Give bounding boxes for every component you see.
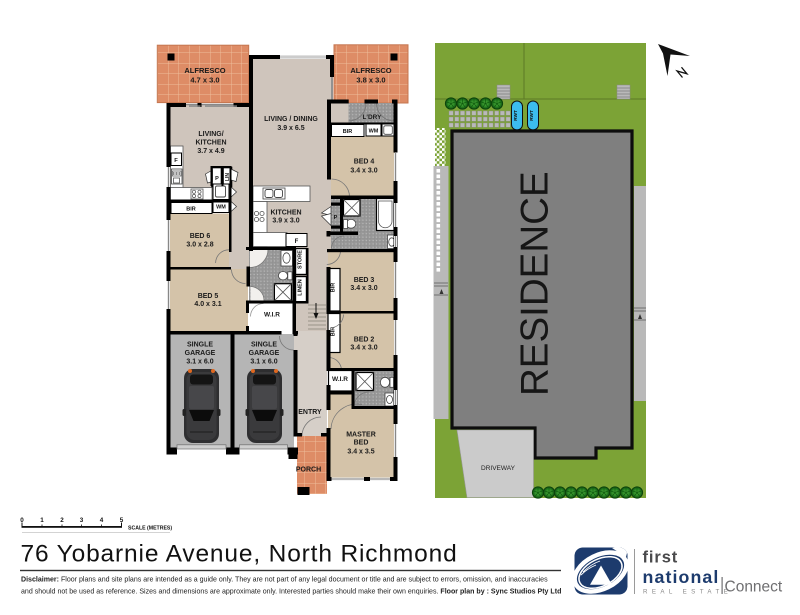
svg-text:MASTER: MASTER xyxy=(346,432,376,439)
svg-text:Disclaimer: Floor plans and si: Disclaimer: Floor plans and site plans a… xyxy=(21,577,548,584)
svg-text:2: 2 xyxy=(60,517,64,524)
svg-text:KITCHEN: KITCHEN xyxy=(195,140,226,147)
svg-text:SCALE (METRES): SCALE (METRES) xyxy=(128,526,172,532)
svg-text:3.1 x 6.0: 3.1 x 6.0 xyxy=(186,359,213,366)
svg-text:BED 2: BED 2 xyxy=(354,337,375,344)
svg-text:ALFRESCO: ALFRESCO xyxy=(350,66,391,75)
svg-text:P: P xyxy=(215,176,219,182)
svg-text:3.4 x 3.0: 3.4 x 3.0 xyxy=(350,345,377,352)
svg-text:3.9 x 6.5: 3.9 x 6.5 xyxy=(277,125,304,132)
svg-text:SINGLE: SINGLE xyxy=(251,342,277,349)
svg-text:WM: WM xyxy=(216,205,226,211)
svg-text:4.0 x 3.1: 4.0 x 3.1 xyxy=(194,301,221,308)
svg-text:WM: WM xyxy=(369,129,379,135)
svg-text:BIR: BIR xyxy=(331,283,337,293)
svg-text:3.4 x 3.5: 3.4 x 3.5 xyxy=(347,449,374,456)
svg-text:LIVING/: LIVING/ xyxy=(198,131,223,138)
svg-text:3.0 x 2.8: 3.0 x 2.8 xyxy=(186,242,213,249)
svg-text:BIR: BIR xyxy=(331,327,337,337)
svg-text:RWT: RWT xyxy=(513,110,519,121)
svg-text:F: F xyxy=(174,158,178,164)
svg-text:BIR: BIR xyxy=(186,207,196,213)
svg-text:first: first xyxy=(643,549,679,567)
svg-text:L’DRY: L’DRY xyxy=(363,114,383,121)
svg-text:4.7 x 3.0: 4.7 x 3.0 xyxy=(190,76,219,85)
svg-text:BED 3: BED 3 xyxy=(354,277,375,284)
svg-text:3.1 x 6.0: 3.1 x 6.0 xyxy=(250,359,277,366)
svg-text:REAL ESTATE: REAL ESTATE xyxy=(643,589,732,596)
svg-text:LIVING / DINING: LIVING / DINING xyxy=(264,116,318,123)
svg-text:BED 4: BED 4 xyxy=(354,159,375,166)
svg-text:GARAGE: GARAGE xyxy=(249,350,280,357)
svg-text:3.8 x 3.0: 3.8 x 3.0 xyxy=(356,76,385,85)
svg-text:4: 4 xyxy=(100,517,104,524)
svg-text:P: P xyxy=(334,215,338,221)
svg-text:W.I.R: W.I.R xyxy=(332,376,348,383)
svg-text:BIR: BIR xyxy=(343,129,353,135)
svg-text:1: 1 xyxy=(40,517,44,524)
svg-text:Connect: Connect xyxy=(725,579,783,596)
svg-text:BED 6: BED 6 xyxy=(190,233,211,240)
svg-text:F: F xyxy=(295,239,299,245)
svg-text:ENTRY: ENTRY xyxy=(298,409,322,416)
svg-text:PORCH: PORCH xyxy=(296,467,321,474)
svg-text:ALFRESCO: ALFRESCO xyxy=(184,66,225,75)
svg-text:DRIVEWAY: DRIVEWAY xyxy=(481,465,516,472)
svg-text:SINGLE: SINGLE xyxy=(187,342,213,349)
svg-text:RESIDENCE: RESIDENCE xyxy=(514,171,557,396)
svg-text:and should not be used as refe: and should not be used as reference. Siz… xyxy=(21,589,561,596)
svg-text:GARAGE: GARAGE xyxy=(185,350,216,357)
svg-text:3.9 x 3.0: 3.9 x 3.0 xyxy=(272,218,299,225)
svg-text:RWT: RWT xyxy=(529,110,535,121)
svg-text:BED 5: BED 5 xyxy=(198,293,219,300)
svg-text:BED: BED xyxy=(354,440,369,447)
svg-text:KITCHEN: KITCHEN xyxy=(270,210,301,217)
svg-text:3.7 x 4.9: 3.7 x 4.9 xyxy=(197,148,224,155)
svg-text:3: 3 xyxy=(80,517,84,524)
svg-text:STORE: STORE xyxy=(298,250,304,269)
svg-text:3.4 x 3.0: 3.4 x 3.0 xyxy=(350,168,377,175)
svg-text:W.I.R: W.I.R xyxy=(264,312,280,319)
svg-text:76 Yobarnie Avenue, North Rich: 76 Yobarnie Avenue, North Richmond xyxy=(21,541,458,568)
svg-text:3.4 x 3.0: 3.4 x 3.0 xyxy=(350,285,377,292)
svg-text:national: national xyxy=(643,567,720,587)
svg-text:LINEN: LINEN xyxy=(298,279,304,296)
